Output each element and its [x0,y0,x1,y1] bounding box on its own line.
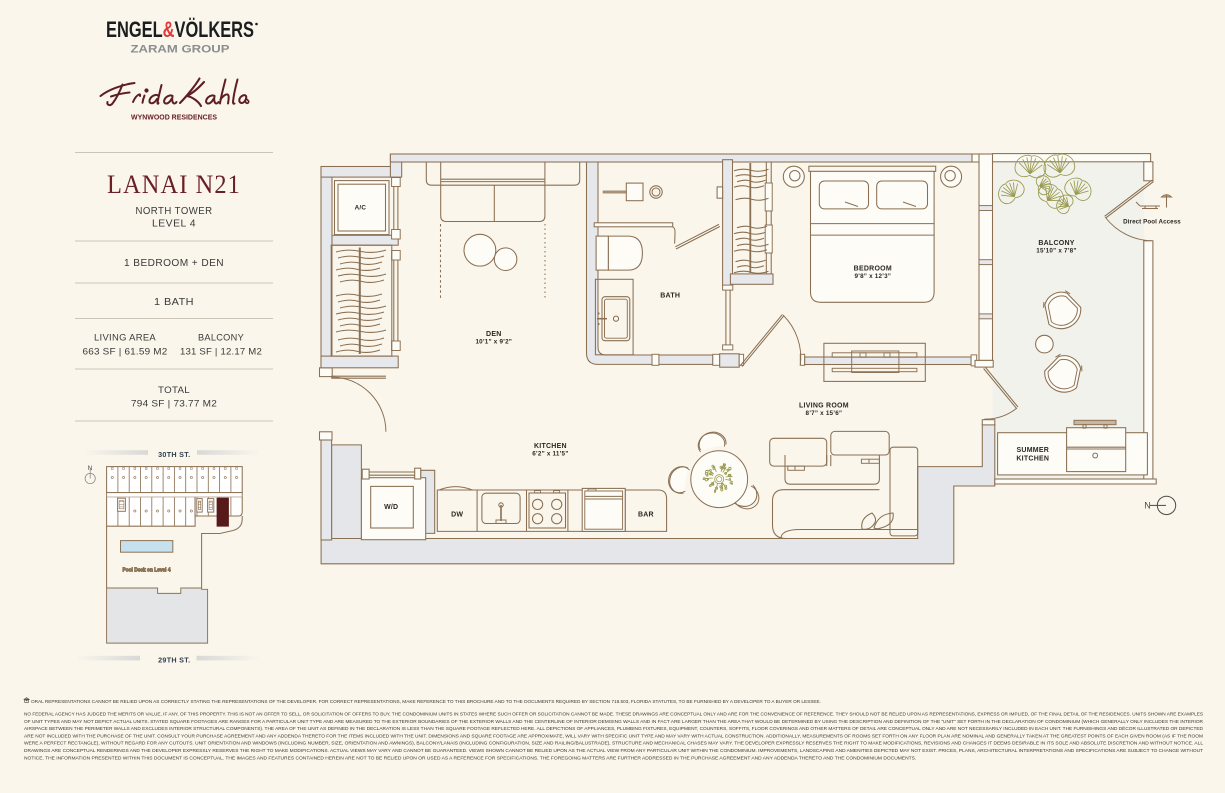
svg-text:BALCONY: BALCONY [198,333,244,344]
svg-text:AIRSPACE BETWEEN THE PERIMETER: AIRSPACE BETWEEN THE PERIMETER WALLS AND… [24,725,1203,732]
svg-text:9’8” x 12’3”: 9’8” x 12’3” [854,273,891,280]
svg-text:8’7” x 15’6”: 8’7” x 15’6” [806,410,843,417]
svg-text:BALCONY: BALCONY [1038,240,1074,247]
svg-text:131 SF | 12.17 M2: 131 SF | 12.17 M2 [180,347,262,358]
svg-text:663 SF | 61.59 M2: 663 SF | 61.59 M2 [83,347,168,358]
svg-text:1 BATH: 1 BATH [154,297,194,308]
svg-text:KITCHEN: KITCHEN [1016,456,1049,463]
svg-text:OF UNIT TYPES AND MAY NOT DEPI: OF UNIT TYPES AND MAY NOT DEPICT ACTUAL … [24,719,1203,725]
svg-text:N: N [1144,501,1151,511]
svg-text:LIVING AREA: LIVING AREA [94,333,156,344]
svg-text:BAR: BAR [638,512,654,519]
svg-text:WERE A PERFECT RECTANGLE), WIT: WERE A PERFECT RECTANGLE), WITHOUT REGAR… [24,741,1203,747]
svg-text:1 BEDROOM + DEN: 1 BEDROOM + DEN [124,258,224,269]
svg-text:ZARAM GROUP: ZARAM GROUP [131,44,230,56]
svg-text:DW: DW [451,512,463,519]
svg-text:DRAWINGS ARE CONCEPTUAL RENDER: DRAWINGS ARE CONCEPTUAL RENDERINGS AND T… [24,748,1203,754]
svg-text:BATH: BATH [660,293,680,300]
svg-text:KITCHEN: KITCHEN [534,443,567,450]
svg-text:ARE NOT INCLUDED WITH THE PURC: ARE NOT INCLUDED WITH THE PURCHASE OF TH… [24,733,1203,739]
svg-text:BEDROOM: BEDROOM [854,266,892,273]
svg-text:DEN: DEN [486,331,502,338]
svg-text:LANAI N21: LANAI N21 [107,170,241,199]
svg-text:WYNWOOD RESIDENCES: WYNWOOD RESIDENCES [131,113,217,122]
svg-text:LIVING ROOM: LIVING ROOM [799,403,849,410]
svg-text:NOTICE. THE INFORMATION PRESEN: NOTICE. THE INFORMATION PRESENTED WITHIN… [24,755,916,761]
svg-text:W/D: W/D [384,504,398,511]
svg-text:30TH ST.: 30TH ST. [158,450,190,459]
svg-text:TOTAL: TOTAL [158,385,190,396]
svg-text:NORTH TOWER: NORTH TOWER [136,205,213,217]
svg-text:Pool Deck on Level 4: Pool Deck on Level 4 [123,568,171,574]
svg-text:LEVEL 4: LEVEL 4 [152,218,196,230]
svg-text:10’1” x 9’2”: 10’1” x 9’2” [475,339,512,346]
svg-text:ORAL REPRESENTATIONS CANNOT BE: ORAL REPRESENTATIONS CANNOT BE RELIED UP… [31,699,821,705]
svg-text:15’10” x 7’8”: 15’10” x 7’8” [1036,248,1076,255]
svg-text:6’2” x 11’5”: 6’2” x 11’5” [532,451,568,458]
svg-text:SUMMER: SUMMER [1016,447,1049,454]
svg-text:794 SF | 73.77 M2: 794 SF | 73.77 M2 [131,399,217,410]
svg-text:Direct Pool Access: Direct Pool Access [1123,219,1181,226]
svg-text:29TH ST.: 29TH ST. [158,655,190,664]
svg-text:NO FEDERAL AGENCY HAS JUDGED T: NO FEDERAL AGENCY HAS JUDGED THE MERITS … [24,712,1204,718]
svg-text:A/C: A/C [355,205,367,212]
svg-text:ENGEL&VÖLKERS: ENGEL&VÖLKERS [106,17,254,42]
